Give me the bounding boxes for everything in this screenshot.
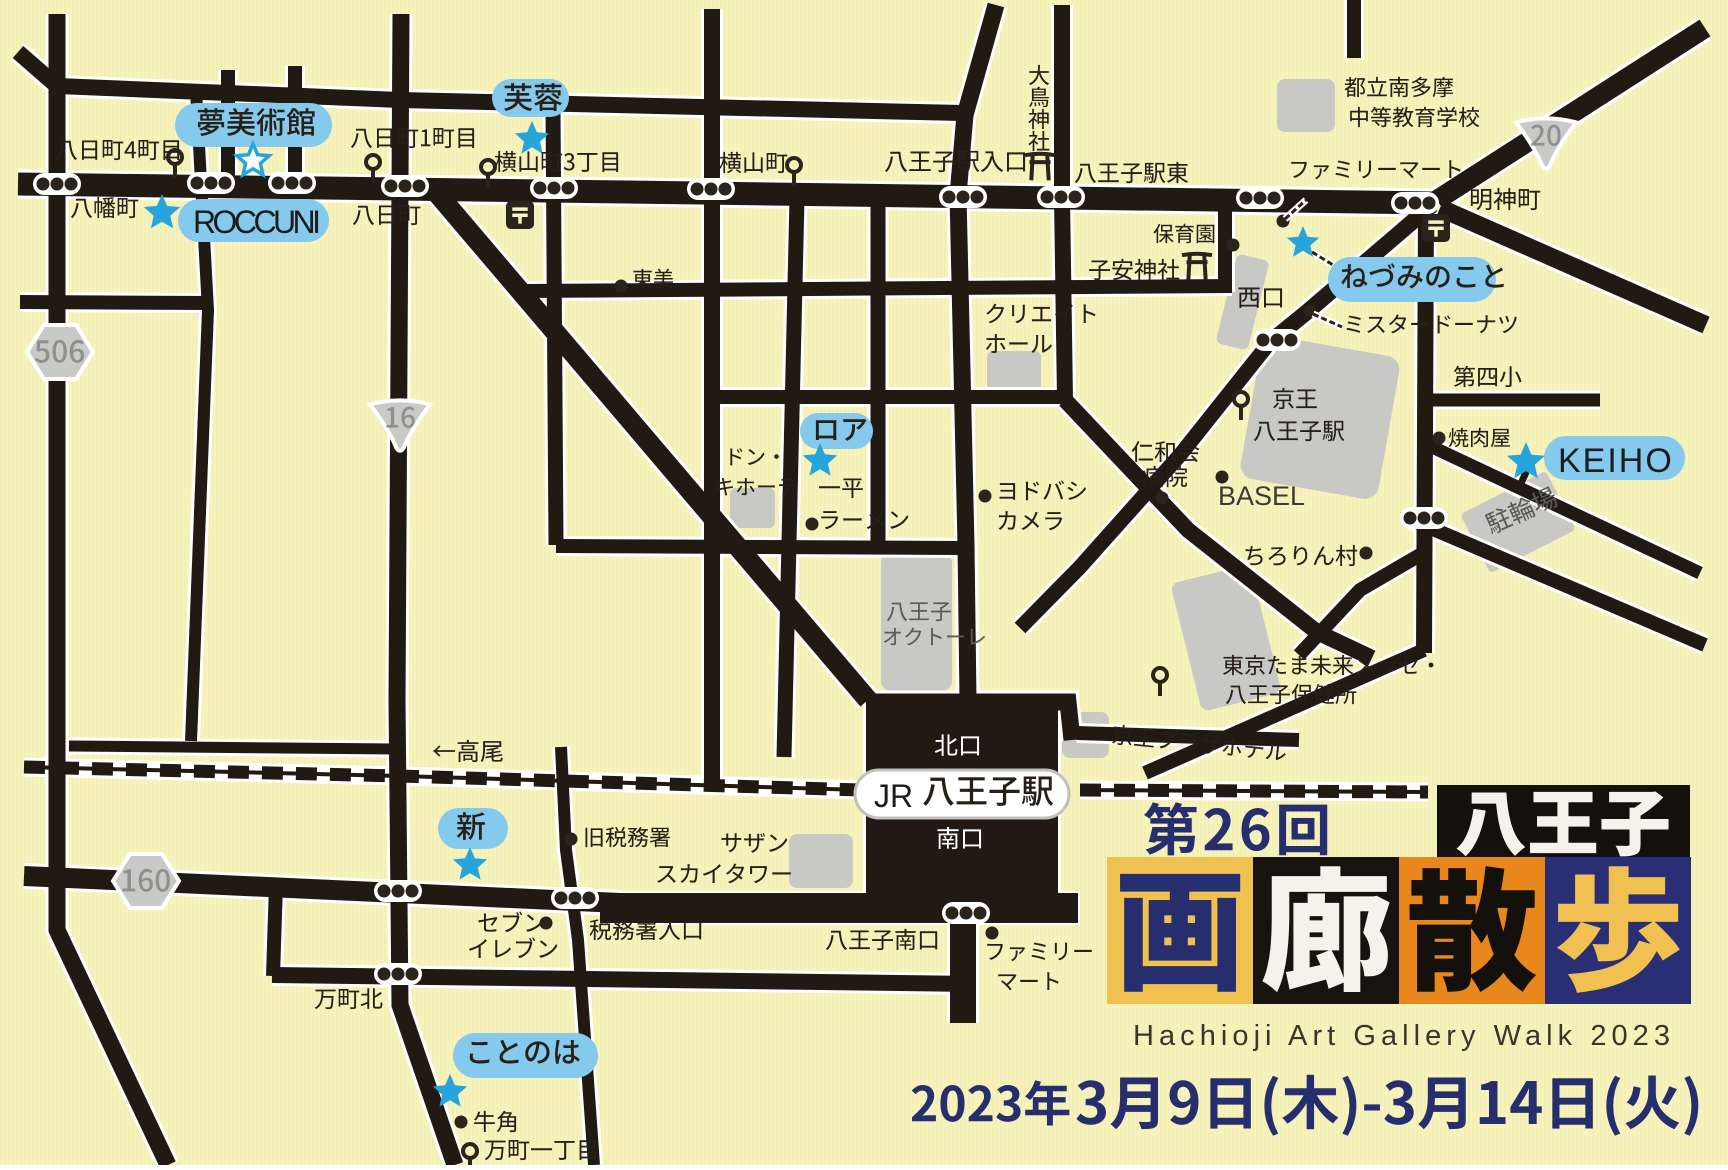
svg-text:BASEL: BASEL xyxy=(1218,481,1305,511)
svg-text:JR: JR xyxy=(874,778,913,814)
svg-text:ROCCUNI: ROCCUNI xyxy=(193,204,321,240)
svg-text:Hachioji Art Gallery Walk 2023: Hachioji Art Gallery Walk 2023 xyxy=(1133,1020,1670,1052)
svg-text:KEIHO: KEIHO xyxy=(1558,442,1674,480)
